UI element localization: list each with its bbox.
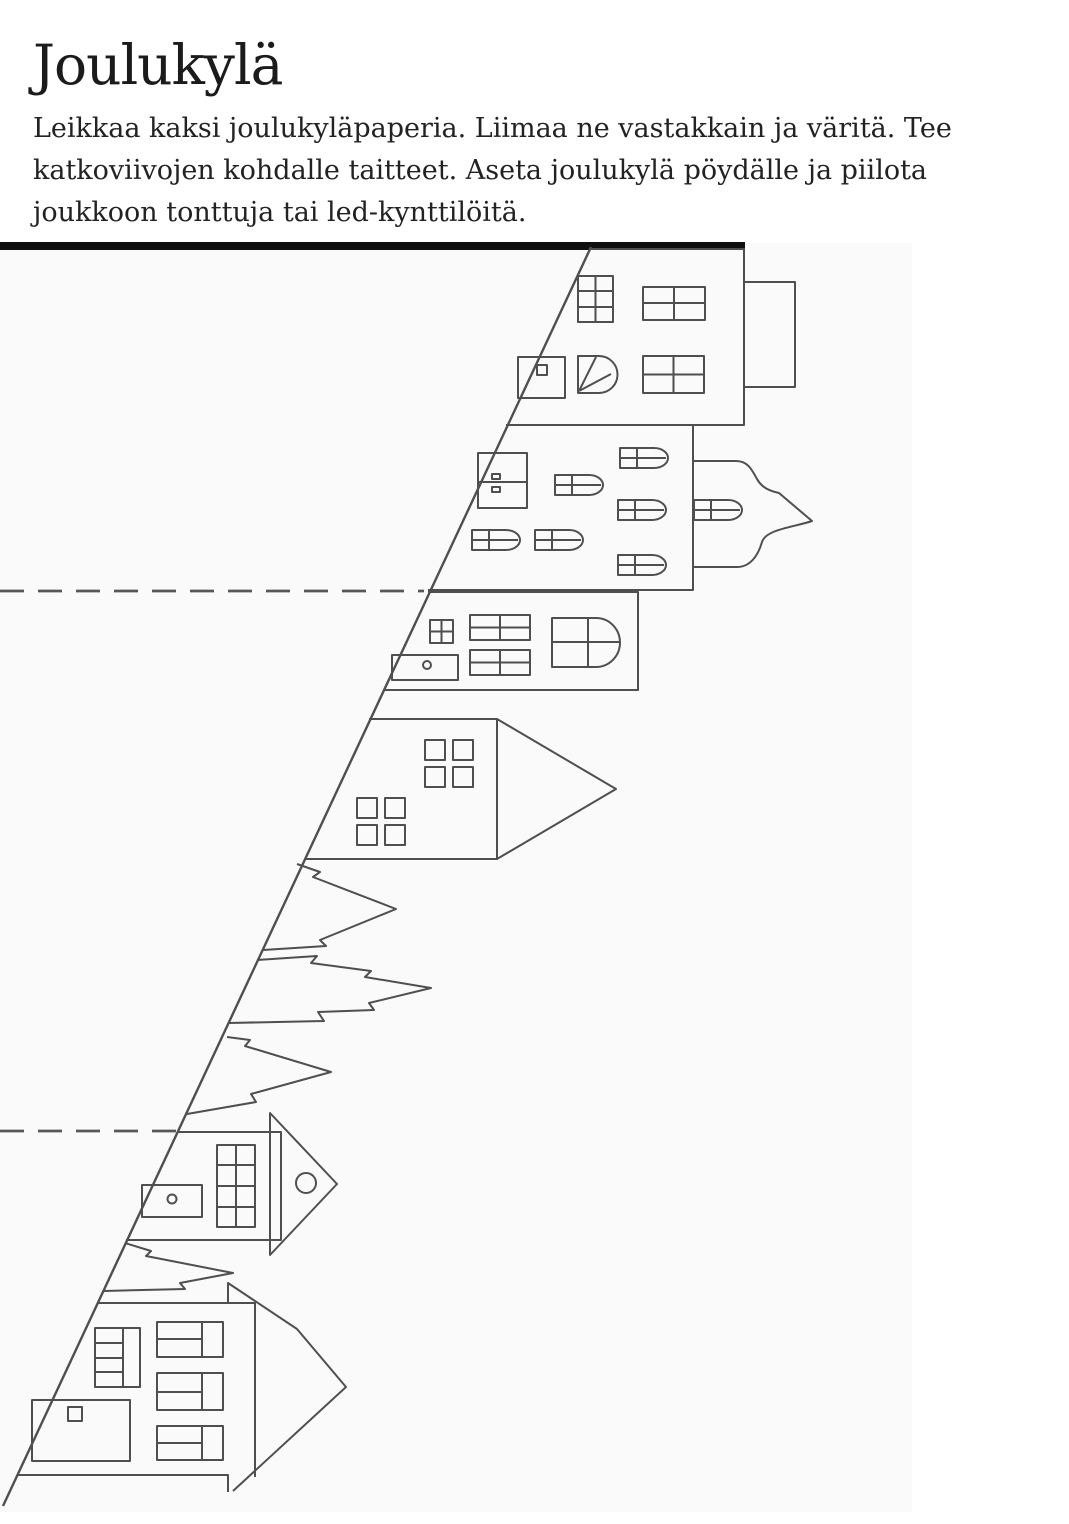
figure-background — [0, 243, 912, 1512]
craft-template-figure — [0, 0, 1069, 1524]
